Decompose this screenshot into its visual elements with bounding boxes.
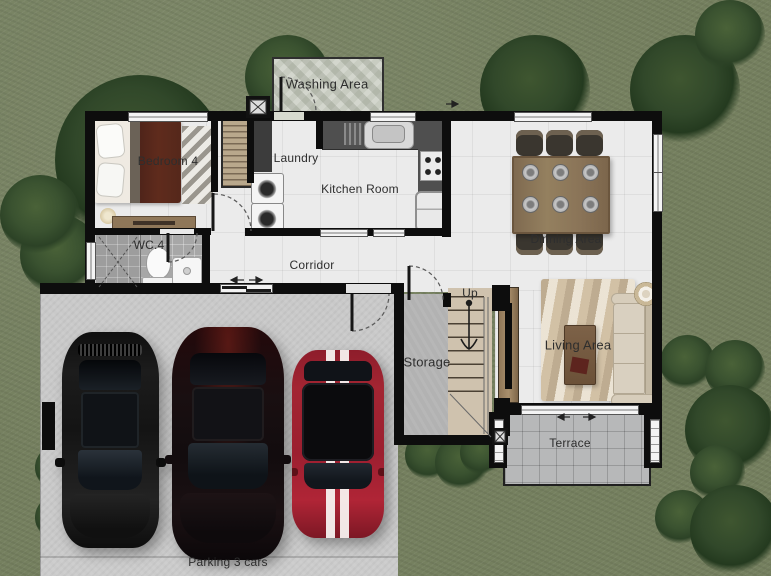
car-windshield (188, 443, 268, 489)
label-kitchen: Kitchen Room (321, 182, 399, 196)
label-corridor: Corridor (290, 258, 335, 272)
label-bedroom-4: Bedroom 4 (138, 154, 199, 168)
car-mirror (55, 458, 65, 467)
wall-kitchen-left (316, 121, 323, 149)
place-setting (582, 164, 599, 181)
car-hood (70, 494, 150, 538)
place-setting (552, 196, 569, 213)
place-setting (522, 196, 539, 213)
wall-stairs-post (443, 293, 451, 307)
place-setting (552, 164, 569, 181)
label-washing-area: Washing Area (286, 77, 369, 92)
label-parking: Parking 3 cars (188, 555, 268, 569)
sofa (613, 293, 657, 406)
window-corridor-2 (373, 229, 405, 237)
garage-door-opening (346, 284, 391, 293)
car-dark-coupe (172, 327, 284, 560)
sliding-door-panel (246, 289, 271, 292)
label-terrace: Terrace (549, 436, 590, 450)
wall-wc-right (202, 234, 210, 290)
tree (690, 485, 771, 575)
label-up: Up (462, 286, 478, 300)
car-windshield (78, 450, 142, 490)
washing-door-opening (274, 112, 304, 120)
pillow (96, 162, 126, 198)
wc-sink (172, 257, 202, 286)
window-dining-top (514, 112, 592, 122)
kitchen-sink (364, 121, 414, 149)
car-roof (302, 383, 374, 461)
car-mirror (281, 455, 291, 464)
tree (0, 175, 80, 255)
window-corridor-1 (320, 229, 368, 237)
window-dining-right-1 (653, 134, 663, 174)
tv (505, 303, 512, 389)
terrace-column-window (650, 419, 660, 463)
sliding-door-panel (222, 286, 247, 289)
wall-laundry-left (247, 121, 254, 183)
label-storage: Storage (404, 355, 451, 370)
label-dining: Dinning Area (530, 232, 601, 246)
washing-machine (251, 173, 284, 204)
stair-treads (448, 296, 484, 392)
terrace-column-window (494, 419, 504, 463)
wall-kitchen-right (442, 121, 451, 237)
tree (695, 0, 765, 70)
car-black-sports (62, 332, 159, 548)
car-rear-window (79, 360, 141, 390)
dining-chair (516, 130, 543, 156)
table-tray (570, 357, 589, 375)
window-wc-left (86, 242, 96, 280)
garage-gate-post (42, 402, 55, 450)
car-rear-grille (78, 344, 142, 356)
floor-plan: Washing Area Bedroom 4 Laundry Kitchen R… (0, 0, 771, 576)
car-windshield (304, 463, 372, 489)
drainboard (344, 123, 362, 145)
car-hood (180, 493, 276, 543)
label-wc4: WC.4 (134, 238, 165, 252)
dresser-handle (133, 221, 175, 225)
car-roof (81, 392, 139, 448)
dining-chair (546, 130, 573, 156)
car-rear-window (304, 361, 372, 381)
floor-terrace (503, 414, 651, 486)
car-roof (192, 387, 264, 441)
window-bedroom-top (128, 112, 208, 122)
car-mirror (165, 455, 175, 464)
coffee-table (564, 325, 596, 385)
wall-stairs-column (492, 285, 510, 311)
window-living-terrace (521, 405, 639, 415)
window-kitchen-top (370, 112, 416, 122)
sliding-door (220, 284, 273, 293)
wc-door-opening (160, 229, 194, 234)
label-laundry: Laundry (274, 151, 319, 165)
sink-drain (183, 267, 191, 275)
window-dining-right-2 (653, 172, 663, 212)
dining-chair (576, 130, 603, 156)
place-setting (582, 196, 599, 213)
wall-bedroom-right (211, 121, 218, 192)
wall-storage-left (394, 283, 404, 445)
pillow (95, 123, 125, 160)
place-setting (522, 164, 539, 181)
car-mirror (378, 468, 384, 476)
label-living: Living Area (545, 338, 612, 353)
car-rear-window (190, 353, 266, 385)
sink-basin (372, 125, 405, 143)
sofa-seats (613, 303, 645, 396)
car-red-mini (292, 350, 384, 538)
car-mirror (292, 468, 298, 476)
